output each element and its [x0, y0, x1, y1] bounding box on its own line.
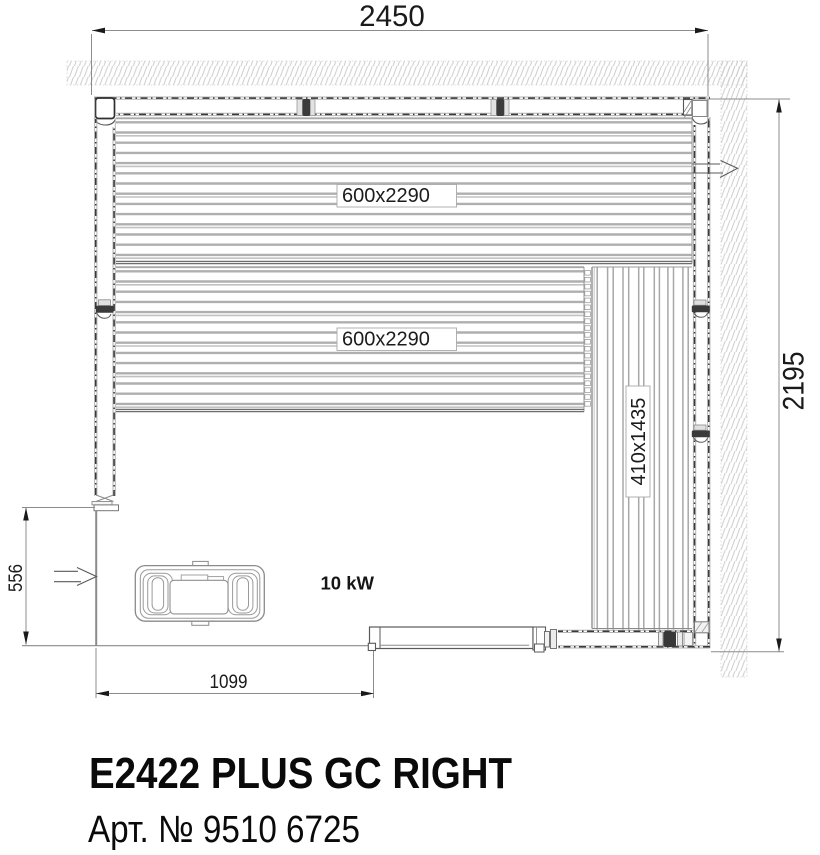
svg-text:600x2290: 600x2290 [342, 185, 430, 207]
svg-text:10 kW: 10 kW [321, 573, 375, 594]
svg-text:E2422 PLUS GC RIGHT: E2422 PLUS GC RIGHT [89, 750, 512, 798]
svg-text:Арт. № 9510 6725: Арт. № 9510 6725 [88, 809, 360, 850]
svg-text:556: 556 [6, 564, 27, 592]
svg-text:1099: 1099 [210, 672, 248, 693]
svg-text:2450: 2450 [359, 0, 425, 33]
svg-text:2195: 2195 [778, 352, 811, 411]
svg-text:410x1435: 410x1435 [628, 398, 650, 486]
svg-text:600x2290: 600x2290 [342, 329, 430, 351]
